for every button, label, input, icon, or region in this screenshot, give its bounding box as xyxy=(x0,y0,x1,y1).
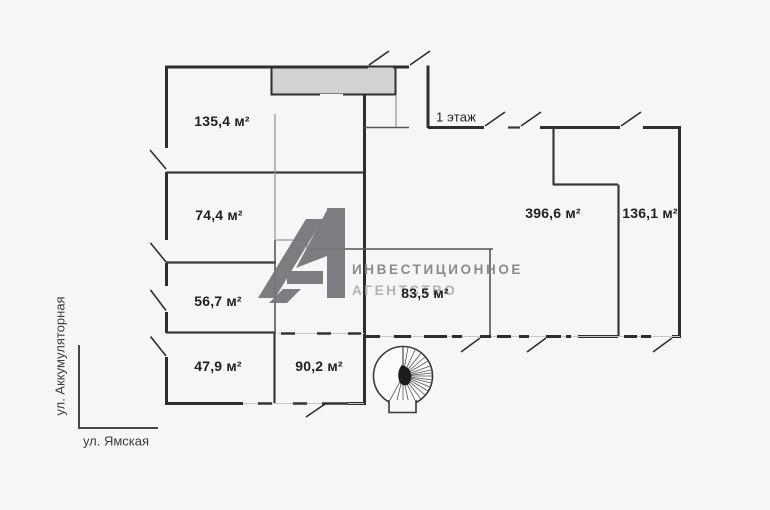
room-area-label-56-7: 56,7 м² xyxy=(194,293,242,309)
room-area-label-136-1: 136,1 м² xyxy=(622,205,678,221)
street-label-yamskaya: ул. Ямская xyxy=(83,434,149,449)
floor-plan-page: ИНВЕСТИЦИОННОЕ АГЕНТСТВО 135,4 м² 74,4 м… xyxy=(0,0,770,510)
room-area-label-83-5: 83,5 м² xyxy=(401,285,449,301)
room-area-label-396-6: 396,6 м² xyxy=(525,205,581,221)
floor-label: 1 этаж xyxy=(436,110,476,125)
room-area-label-135-4: 135,4 м² xyxy=(194,113,250,129)
gray-block xyxy=(272,67,396,96)
spiral-staircase-icon xyxy=(374,347,433,413)
room-area-label-90-2: 90,2 м² xyxy=(295,358,343,374)
room-area-label-74-4: 74,4 м² xyxy=(195,207,243,223)
room-area-label-47-9: 47,9 м² xyxy=(194,358,242,374)
street-label-akkumulyatornaya: ул. Аккумуляторная xyxy=(53,296,68,415)
watermark-line1: ИНВЕСТИЦИОННОЕ xyxy=(352,262,523,277)
a1-logo-icon xyxy=(258,208,345,303)
street-axis-line xyxy=(79,345,158,428)
